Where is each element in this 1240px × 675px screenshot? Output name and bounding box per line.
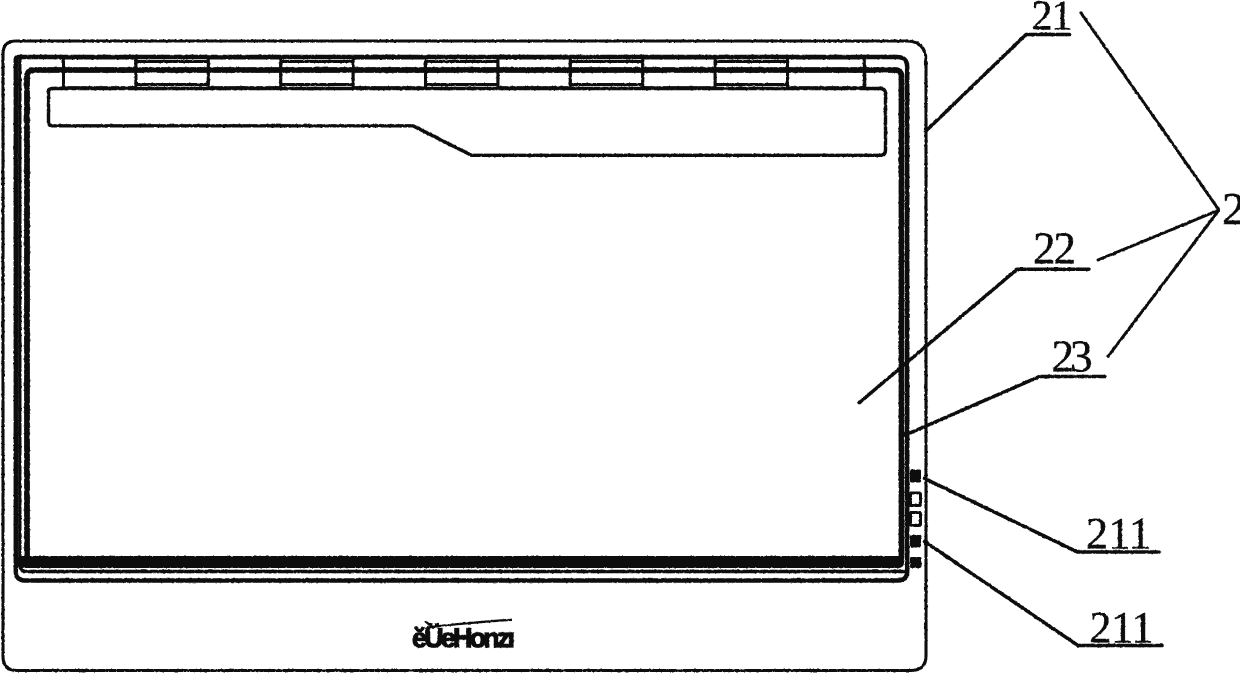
svg-text:ĕÜeHonzı: ĕÜeHonzı (412, 623, 515, 653)
svg-text:211: 211 (1090, 603, 1154, 652)
svg-text:211: 211 (1086, 509, 1151, 558)
svg-text:22: 22 (1033, 224, 1076, 274)
svg-text:21: 21 (1032, 0, 1073, 40)
svg-text:2: 2 (1222, 183, 1240, 234)
svg-text:23: 23 (1052, 332, 1093, 382)
